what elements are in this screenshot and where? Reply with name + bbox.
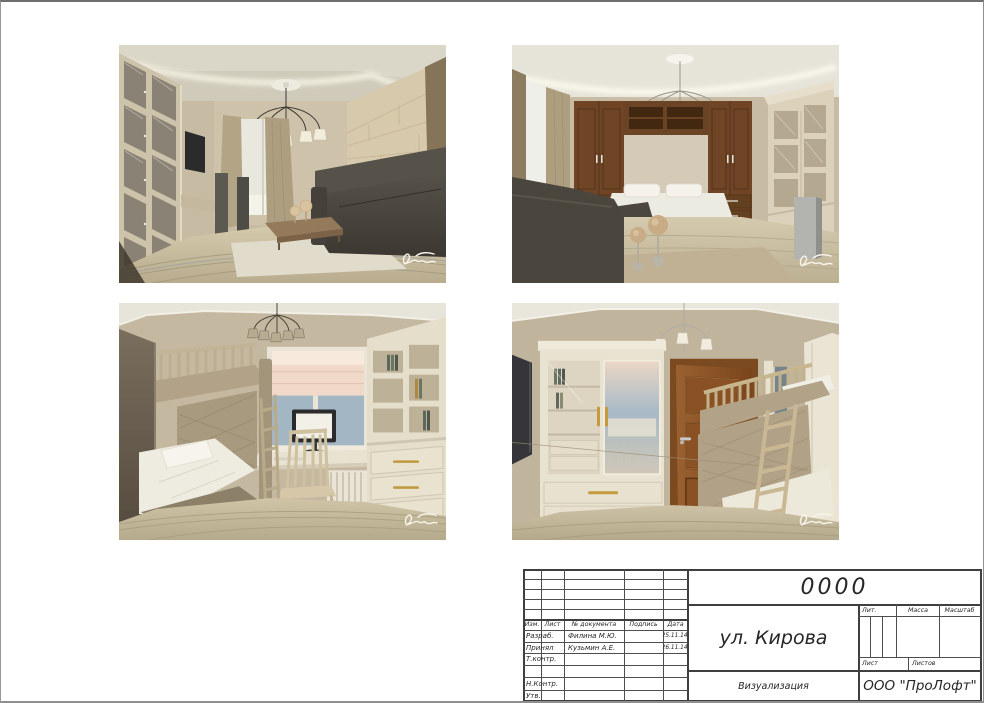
render-kids-room-door	[512, 303, 839, 540]
render-kids-room-desk	[119, 303, 446, 540]
stamp-label-lit: Лит.	[860, 604, 898, 616]
stamp-label-masshtab: Масштаб	[939, 604, 980, 616]
stamp-role: Утв.	[524, 690, 566, 701]
living-room-image	[119, 45, 446, 283]
stamp-col-izm: Изм.	[523, 619, 541, 630]
stamp-col-doc-num: № документа	[564, 619, 624, 630]
stamp-name: Филина М.Ю.	[566, 630, 625, 642]
stamp-role: Т.контр.	[524, 653, 566, 665]
stamp-label-massa: Масса	[897, 604, 939, 616]
render-living-room	[119, 45, 446, 283]
stamp-role: Н.Контр.	[524, 677, 566, 690]
stamp-date: 25.11.14.	[663, 630, 688, 642]
stamp-doc-type: Визуализация	[689, 672, 858, 700]
stamp-project-title: ул. Кирова	[689, 606, 858, 670]
stamp-document-code: 0000	[689, 571, 980, 604]
bedroom-image	[512, 45, 839, 283]
render-bedroom-wall-bed	[512, 45, 839, 283]
stamp-name: Кузьмин А.Е.	[566, 642, 625, 653]
drawing-sheet: Изм. Лист № документа Подпись Дата Разра…	[0, 0, 984, 703]
kids-room-door-image	[512, 303, 839, 540]
stamp-col-list: Лист	[541, 619, 564, 630]
stamp-company: ООО "ПроЛофт"	[860, 672, 980, 700]
stamp-date: 26.11.14.	[663, 642, 688, 653]
stamp-role: Принял	[524, 642, 566, 653]
title-block: Изм. Лист № документа Подпись Дата Разра…	[523, 569, 982, 702]
stamp-label-listov: Листов	[910, 657, 982, 670]
stamp-col-podpis: Подпись	[624, 619, 663, 630]
stamp-label-list: Лист	[860, 657, 910, 670]
kids-room-desk-image	[119, 303, 446, 540]
stamp-col-data: Дата	[663, 619, 688, 630]
stamp-role: Разраб.	[524, 630, 566, 642]
stamp-role	[524, 665, 566, 677]
